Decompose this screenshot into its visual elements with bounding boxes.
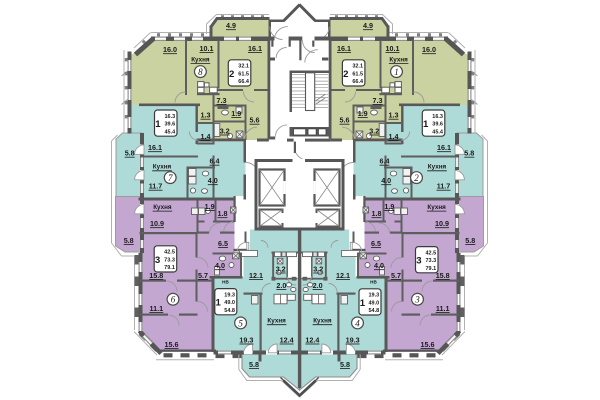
svg-text:61.5: 61.5 bbox=[352, 71, 363, 77]
svg-text:16.3: 16.3 bbox=[432, 114, 443, 120]
svg-text:54.8: 54.8 bbox=[368, 308, 379, 314]
svg-text:4: 4 bbox=[355, 318, 360, 328]
svg-text:Кухня: Кухня bbox=[428, 164, 447, 171]
svg-text:11.7: 11.7 bbox=[437, 182, 451, 191]
svg-text:12.4: 12.4 bbox=[280, 335, 294, 344]
svg-text:10.9: 10.9 bbox=[150, 219, 164, 228]
svg-text:5.6: 5.6 bbox=[340, 116, 350, 125]
svg-text:16.0: 16.0 bbox=[163, 45, 177, 54]
svg-text:16.1: 16.1 bbox=[337, 44, 351, 53]
svg-text:16.1: 16.1 bbox=[148, 143, 162, 152]
svg-text:16.1: 16.1 bbox=[248, 44, 262, 53]
svg-text:66.4: 66.4 bbox=[238, 79, 250, 85]
svg-text:Кухня: Кухня bbox=[191, 56, 210, 63]
svg-text:6.4: 6.4 bbox=[380, 157, 390, 166]
svg-text:12.4: 12.4 bbox=[305, 335, 319, 344]
svg-text:1.4: 1.4 bbox=[389, 132, 399, 141]
svg-text:1: 1 bbox=[423, 119, 429, 130]
svg-text:7: 7 bbox=[168, 173, 173, 183]
svg-text:12.1: 12.1 bbox=[336, 271, 350, 280]
svg-text:5.8: 5.8 bbox=[124, 236, 134, 245]
svg-text:32.1: 32.1 bbox=[352, 64, 363, 70]
svg-text:5.8: 5.8 bbox=[249, 360, 259, 369]
svg-text:2.0: 2.0 bbox=[276, 281, 286, 290]
svg-text:10.1: 10.1 bbox=[200, 44, 214, 53]
svg-text:4.9: 4.9 bbox=[226, 21, 236, 30]
svg-text:1: 1 bbox=[394, 67, 399, 77]
svg-text:16.3: 16.3 bbox=[164, 114, 175, 120]
svg-text:15.6: 15.6 bbox=[165, 340, 179, 349]
svg-text:2.0: 2.0 bbox=[313, 281, 323, 290]
svg-text:5.6: 5.6 bbox=[250, 116, 260, 125]
svg-text:Кухня: Кухня bbox=[427, 204, 446, 211]
svg-text:10.1: 10.1 bbox=[386, 44, 400, 53]
svg-text:5.8: 5.8 bbox=[464, 149, 474, 158]
svg-text:49.0: 49.0 bbox=[224, 300, 235, 306]
svg-text:НВ: НВ bbox=[222, 280, 229, 285]
svg-text:16.0: 16.0 bbox=[422, 45, 436, 54]
svg-text:10.9: 10.9 bbox=[435, 219, 449, 228]
svg-text:19.3: 19.3 bbox=[224, 293, 235, 299]
svg-text:1.8: 1.8 bbox=[372, 209, 382, 218]
svg-text:2: 2 bbox=[229, 69, 234, 80]
svg-text:45.4: 45.4 bbox=[164, 129, 176, 135]
svg-text:Кухня: Кухня bbox=[153, 204, 172, 211]
svg-text:2: 2 bbox=[414, 173, 419, 183]
svg-text:НВ: НВ bbox=[370, 280, 377, 285]
svg-text:49.0: 49.0 bbox=[368, 300, 379, 306]
svg-text:1.3: 1.3 bbox=[201, 111, 211, 120]
svg-text:5: 5 bbox=[238, 318, 243, 328]
svg-text:1.8: 1.8 bbox=[218, 209, 228, 218]
svg-text:5.8: 5.8 bbox=[125, 149, 135, 158]
svg-text:2: 2 bbox=[343, 69, 348, 80]
svg-text:79.1: 79.1 bbox=[425, 266, 436, 272]
svg-text:1.9: 1.9 bbox=[205, 202, 215, 211]
svg-text:7.3: 7.3 bbox=[217, 96, 227, 105]
svg-text:45.4: 45.4 bbox=[432, 129, 444, 135]
svg-text:54.8: 54.8 bbox=[224, 308, 235, 314]
svg-text:32.1: 32.1 bbox=[238, 64, 249, 70]
svg-text:6: 6 bbox=[171, 295, 176, 305]
svg-text:11.7: 11.7 bbox=[149, 182, 163, 191]
svg-text:73.3: 73.3 bbox=[164, 257, 175, 263]
svg-text:61.5: 61.5 bbox=[238, 71, 249, 77]
svg-text:Кухня: Кухня bbox=[389, 56, 408, 63]
svg-text:73.3: 73.3 bbox=[425, 258, 436, 264]
svg-text:1.9: 1.9 bbox=[358, 109, 368, 118]
svg-text:1.4: 1.4 bbox=[201, 132, 211, 141]
svg-text:19.3: 19.3 bbox=[368, 293, 379, 299]
svg-text:3: 3 bbox=[416, 256, 421, 267]
svg-text:11.1: 11.1 bbox=[436, 304, 450, 313]
svg-text:1: 1 bbox=[155, 119, 161, 130]
svg-text:39.6: 39.6 bbox=[164, 122, 175, 128]
svg-text:Кухня: Кухня bbox=[153, 164, 172, 171]
svg-text:3.2: 3.2 bbox=[369, 126, 379, 135]
svg-text:4.9: 4.9 bbox=[363, 21, 373, 30]
svg-text:4.0: 4.0 bbox=[208, 176, 218, 185]
svg-text:3: 3 bbox=[155, 255, 160, 266]
svg-text:3.2: 3.2 bbox=[313, 264, 323, 273]
svg-text:79.1: 79.1 bbox=[164, 265, 175, 271]
svg-text:1: 1 bbox=[360, 298, 366, 309]
svg-text:5.7: 5.7 bbox=[391, 271, 401, 280]
svg-text:1.9: 1.9 bbox=[231, 109, 241, 118]
svg-text:15.6: 15.6 bbox=[421, 340, 435, 349]
svg-text:42.5: 42.5 bbox=[425, 251, 436, 257]
svg-text:66.4: 66.4 bbox=[352, 79, 364, 85]
svg-text:7.3: 7.3 bbox=[373, 96, 383, 105]
svg-text:1: 1 bbox=[216, 298, 222, 309]
svg-text:5.7: 5.7 bbox=[198, 271, 208, 280]
svg-text:19.3: 19.3 bbox=[346, 335, 360, 344]
svg-text:11.1: 11.1 bbox=[150, 304, 164, 313]
svg-text:6.4: 6.4 bbox=[210, 157, 220, 166]
svg-text:3: 3 bbox=[414, 295, 420, 305]
svg-text:6.5: 6.5 bbox=[218, 239, 228, 248]
svg-text:16.1: 16.1 bbox=[437, 143, 451, 152]
svg-text:3.2: 3.2 bbox=[276, 264, 286, 273]
svg-text:8: 8 bbox=[198, 67, 203, 77]
svg-text:6.5: 6.5 bbox=[371, 239, 381, 248]
svg-text:1.9: 1.9 bbox=[384, 202, 394, 211]
svg-text:19.3: 19.3 bbox=[239, 335, 253, 344]
svg-text:1.3: 1.3 bbox=[389, 111, 399, 120]
svg-text:3.2: 3.2 bbox=[220, 126, 230, 135]
svg-text:5.8: 5.8 bbox=[465, 236, 475, 245]
svg-text:5.8: 5.8 bbox=[340, 360, 350, 369]
svg-text:12.1: 12.1 bbox=[249, 271, 263, 280]
svg-text:4.0: 4.0 bbox=[381, 176, 391, 185]
svg-text:Кухня: Кухня bbox=[313, 318, 332, 325]
svg-text:4.0: 4.0 bbox=[374, 261, 384, 270]
svg-text:4.0: 4.0 bbox=[215, 261, 225, 270]
svg-text:39.6: 39.6 bbox=[432, 122, 443, 128]
svg-text:42.5: 42.5 bbox=[164, 250, 175, 256]
svg-text:Кухня: Кухня bbox=[267, 318, 286, 325]
